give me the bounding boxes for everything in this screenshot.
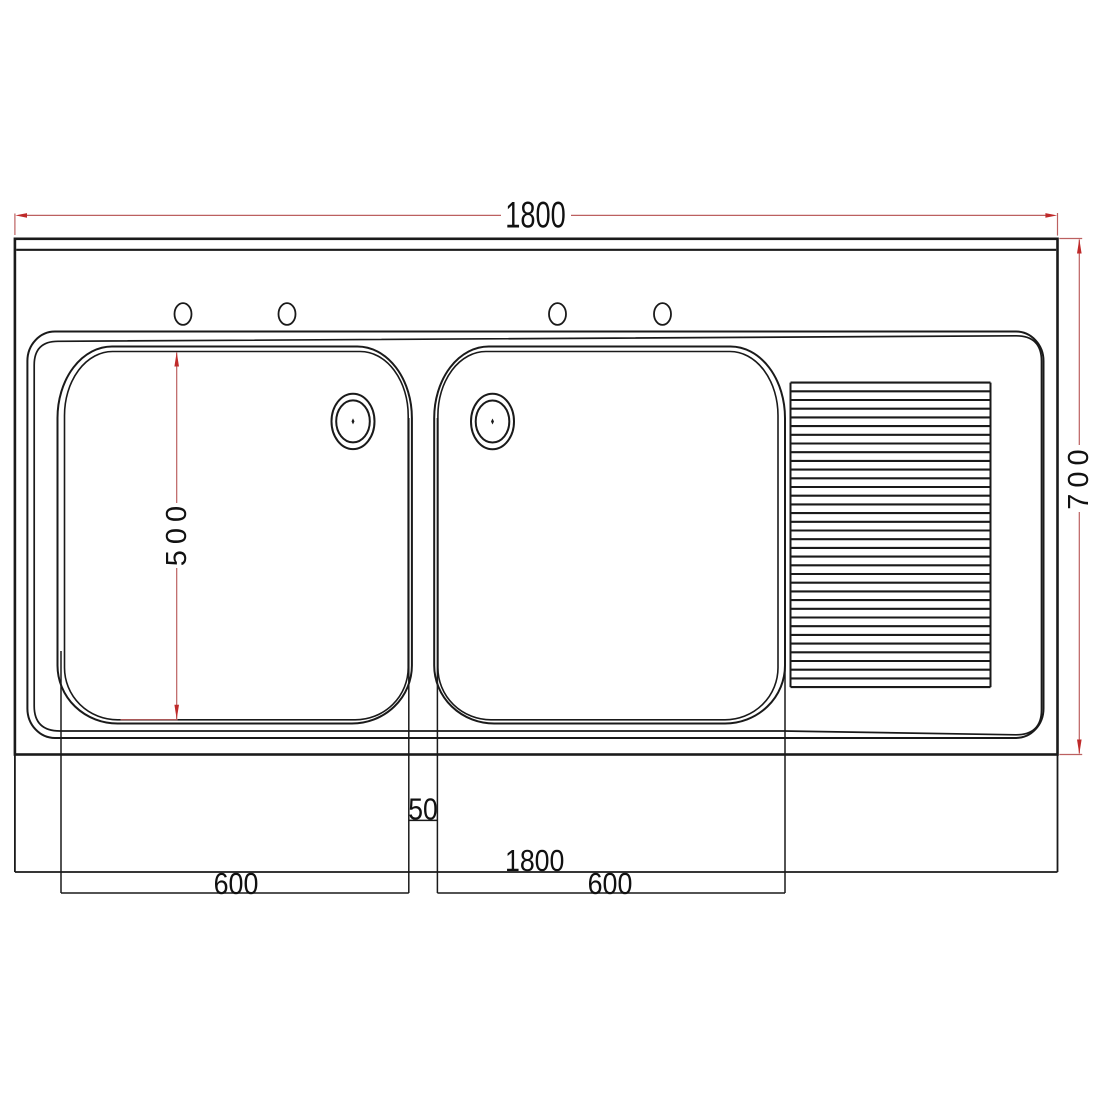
svg-text:1800: 1800 (505, 195, 566, 236)
svg-text:1800: 1800 (505, 843, 565, 878)
svg-text:600: 600 (214, 866, 259, 901)
svg-text:600: 600 (588, 866, 633, 901)
svg-text:700: 700 (1063, 443, 1095, 509)
svg-text:50: 50 (408, 792, 438, 827)
svg-text:500: 500 (161, 500, 193, 566)
